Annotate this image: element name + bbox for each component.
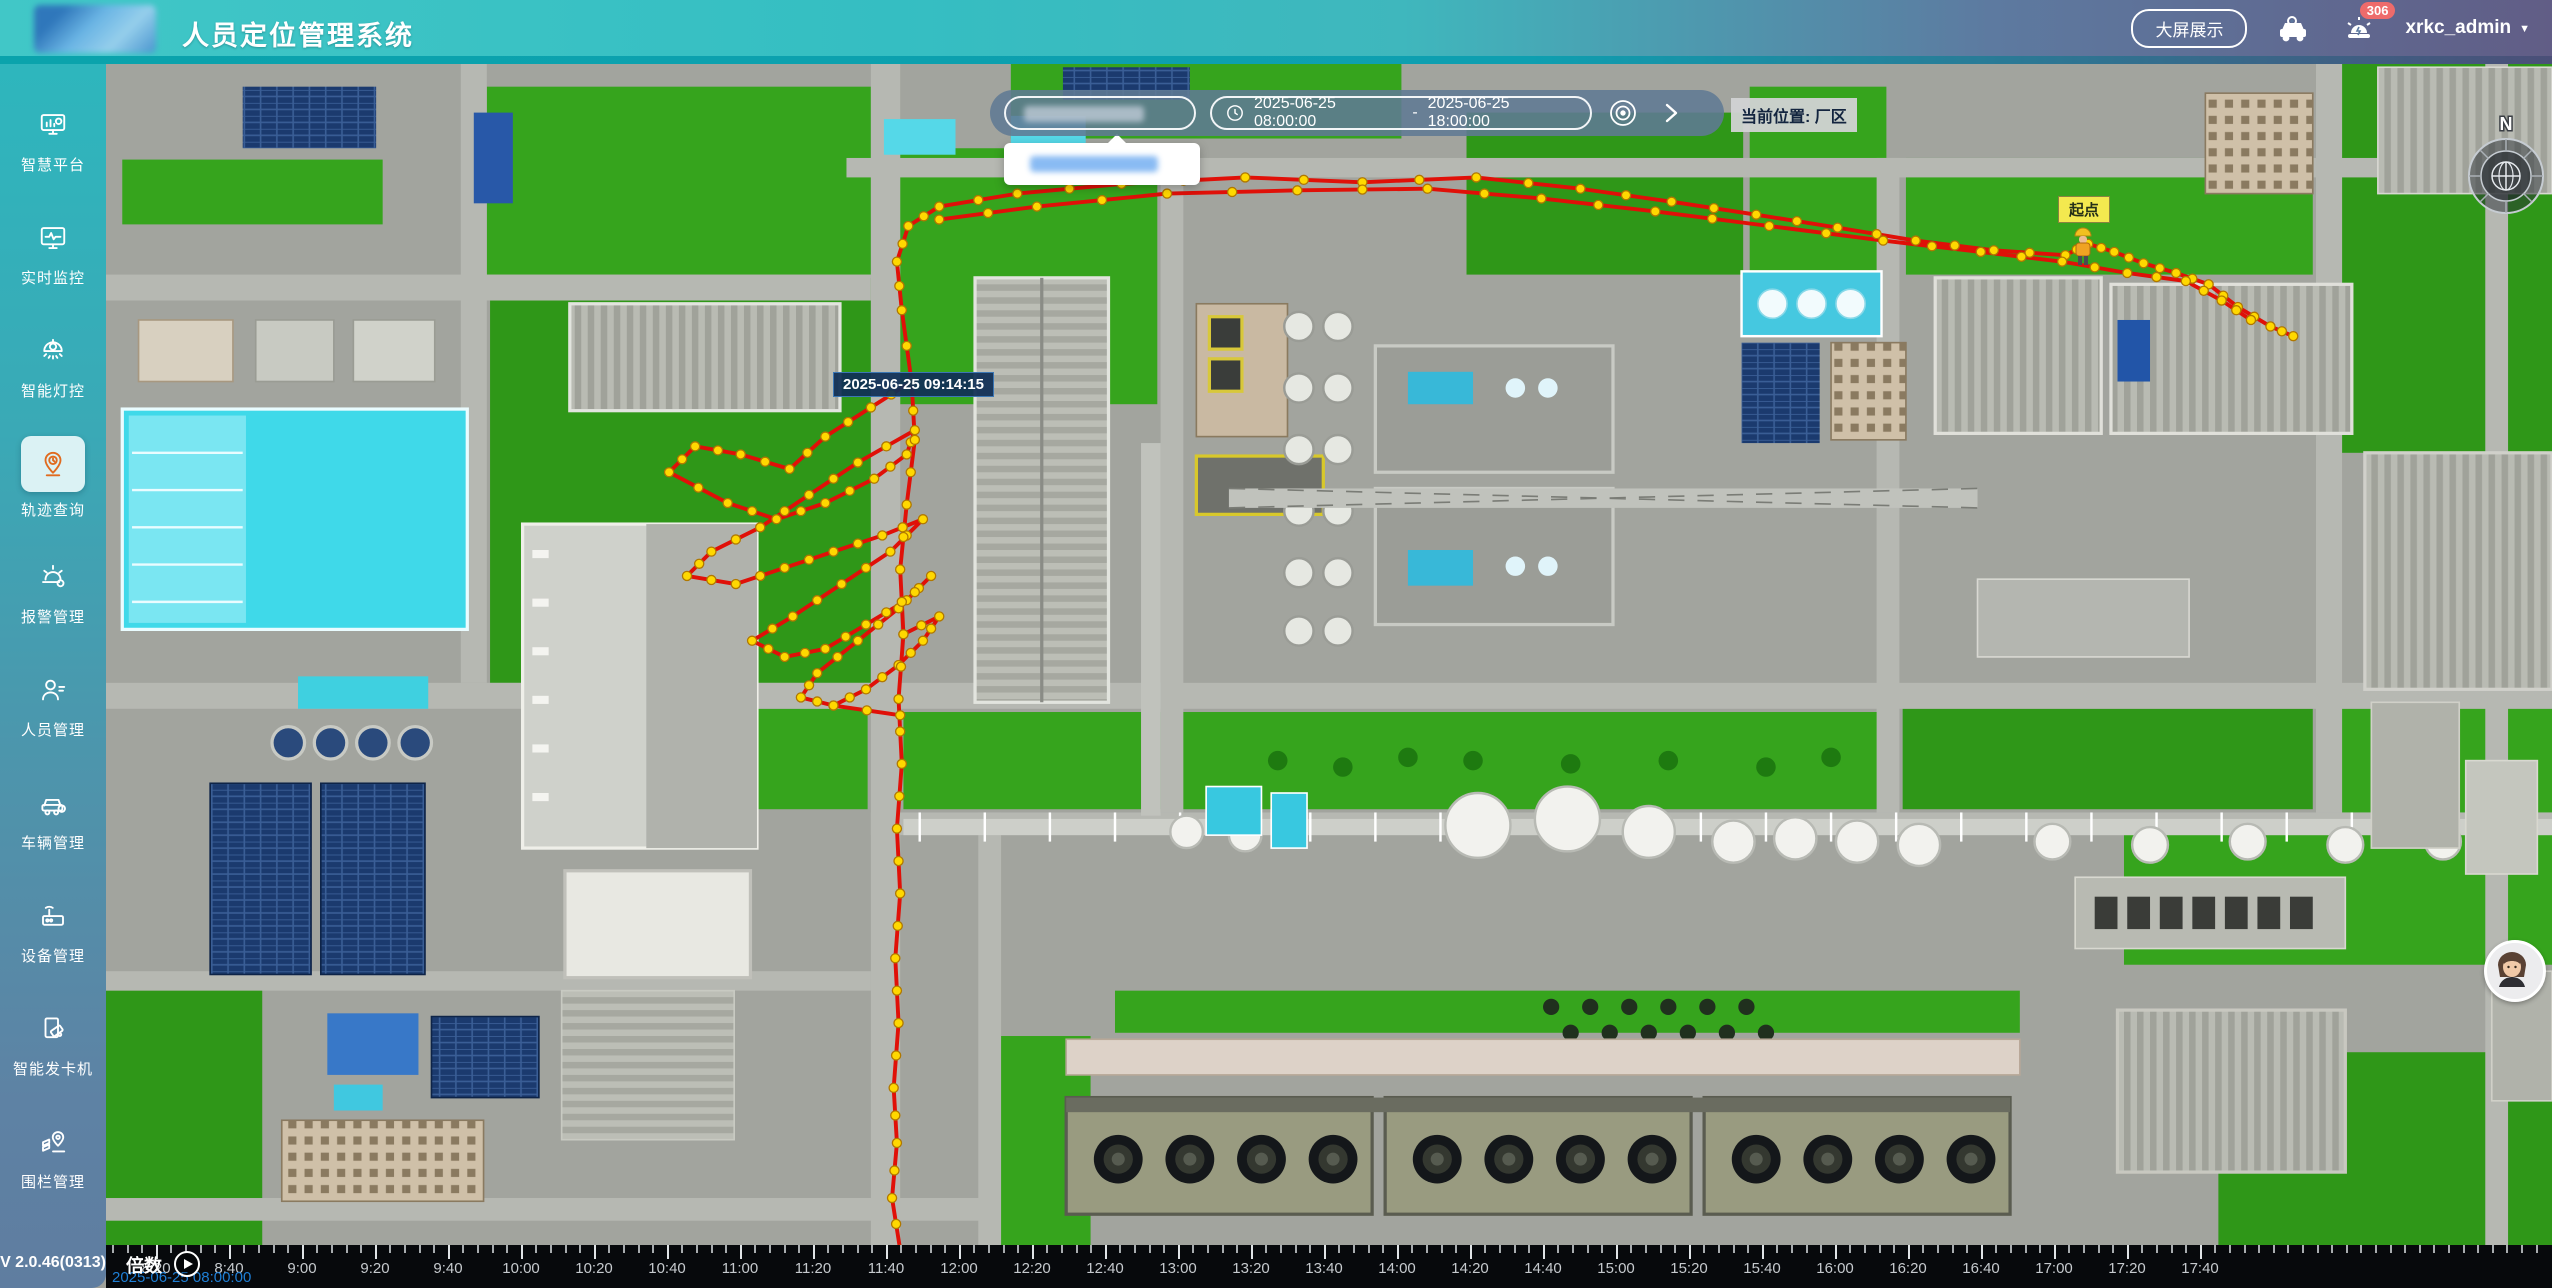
- timeline-minor-tick: [1046, 1245, 1048, 1253]
- timeline-minor-tick: [725, 1245, 727, 1253]
- timeline-minor-tick: [871, 1245, 873, 1253]
- timeline-minor-tick: [1441, 1245, 1443, 1253]
- timeline-tick-label: 12:00: [940, 1260, 978, 1277]
- timeline-minor-tick: [2185, 1245, 2187, 1253]
- sidebar-item-trajectory[interactable]: 轨迹查询: [0, 421, 106, 534]
- timeline-minor-tick: [1645, 1245, 1647, 1253]
- sidebar-item-lamp[interactable]: 智能灯控: [0, 308, 106, 421]
- timeline-minor-tick: [1265, 1245, 1267, 1253]
- timeline-minor-tick: [1119, 1245, 1121, 1253]
- sidebar-item-label: 围栏管理: [21, 1171, 85, 1192]
- timeline-minor-tick: [2244, 1245, 2246, 1253]
- timeline-tick-label: 15:20: [1670, 1260, 1708, 1277]
- timeline-minor-tick: [2360, 1245, 2362, 1253]
- timeline-major-tick: [2200, 1245, 2202, 1259]
- timeline-minor-tick: [2477, 1245, 2479, 1253]
- device-icon: [31, 894, 75, 938]
- timeline-minor-tick: [1061, 1245, 1063, 1253]
- worker-marker[interactable]: [2068, 224, 2098, 273]
- app-title: 人员定位管理系统: [182, 14, 414, 53]
- timeline-minor-tick: [2331, 1245, 2333, 1253]
- timeline-minor-tick: [1090, 1245, 1092, 1253]
- timeline-major-tick: [1470, 1245, 1472, 1259]
- sidebar-nav: 智慧平台实时监控智能灯控轨迹查询报警管理人员管理车辆管理设备管理智能发卡机围栏管…: [0, 64, 106, 1288]
- timeline-minor-tick: [535, 1245, 537, 1253]
- sidebar-item-card[interactable]: 智能发卡机: [0, 986, 106, 1099]
- timeline-minor-tick: [2068, 1245, 2070, 1253]
- timeline-tick-label: 10:00: [502, 1260, 540, 1277]
- timeline-minor-tick: [2463, 1245, 2465, 1253]
- timeline-minor-tick: [1017, 1245, 1019, 1253]
- timeline-minor-tick: [506, 1245, 508, 1253]
- map-viewport[interactable]: 2025-06-25 08:00:00 - 2025-06-25 18:00:0…: [106, 64, 2552, 1245]
- user-menu[interactable]: xrkc_admin ▼: [2405, 17, 2530, 39]
- track-point-tooltip: 2025-06-25 09:14:15: [833, 372, 994, 397]
- timeline-minor-tick: [1455, 1245, 1457, 1253]
- sidebar-item-label: 设备管理: [21, 945, 85, 966]
- timeline-minor-tick: [258, 1245, 260, 1253]
- sidebar-item-vehicle[interactable]: 车辆管理: [0, 760, 106, 873]
- timeline-minor-tick: [1163, 1245, 1165, 1253]
- timeline-minor-tick: [2346, 1245, 2348, 1253]
- timeline-minor-tick: [404, 1245, 406, 1253]
- trajectory-icon: [21, 436, 85, 492]
- date-end: 2025-06-25 18:00:00: [1428, 95, 1576, 131]
- clock-icon: [1226, 104, 1244, 122]
- timeline-minor-tick: [243, 1245, 245, 1253]
- timeline-minor-tick: [1820, 1245, 1822, 1253]
- timeline-minor-tick: [1309, 1245, 1311, 1253]
- timeline-tick-label: 9:00: [287, 1260, 316, 1277]
- alarm-count-badge: 306: [2360, 2, 2396, 19]
- timeline-minor-tick: [433, 1245, 435, 1253]
- timeline-minor-tick: [2390, 1245, 2392, 1253]
- timeline-major-tick: [740, 1245, 742, 1259]
- timeline-minor-tick: [1660, 1245, 1662, 1253]
- timeline-minor-tick: [1411, 1245, 1413, 1253]
- vehicle-icon: [31, 781, 75, 825]
- timeline-minor-tick: [2419, 1245, 2421, 1253]
- timeline-minor-tick: [1747, 1245, 1749, 1253]
- timeline-minor-tick: [1630, 1245, 1632, 1253]
- timeline-major-tick: [1981, 1245, 1983, 1259]
- sidebar-item-label: 轨迹查询: [21, 499, 85, 520]
- timeline-major-tick: [1105, 1245, 1107, 1259]
- timeline-minor-tick: [769, 1245, 771, 1253]
- playback-timeline[interactable]: 8:208:409:009:209:4010:0010:2010:4011:00…: [106, 1245, 2552, 1288]
- timeline-major-tick: [1908, 1245, 1910, 1259]
- timeline-major-tick: [667, 1245, 669, 1259]
- username: xrkc_admin: [2405, 17, 2511, 39]
- timeline-tick-label: 9:40: [433, 1260, 462, 1277]
- sidebar-item-label: 智能发卡机: [13, 1058, 93, 1079]
- timeline-tick-label: 14:00: [1378, 1260, 1416, 1277]
- timeline-minor-tick: [2433, 1245, 2435, 1253]
- timeline-minor-tick: [112, 1245, 114, 1253]
- timeline-major-tick: [2054, 1245, 2056, 1259]
- timeline-minor-tick: [1382, 1245, 1384, 1253]
- timeline-minor-tick: [492, 1245, 494, 1253]
- timeline-tick-label: 16:00: [1816, 1260, 1854, 1277]
- app-header: 人员定位管理系统 大屏展示 306: [0, 0, 2552, 64]
- timeline-minor-tick: [1236, 1245, 1238, 1253]
- timeline-minor-tick: [857, 1245, 859, 1253]
- timeline-minor-tick: [462, 1245, 464, 1253]
- timeline-minor-tick: [170, 1245, 172, 1253]
- timeline-minor-tick: [1149, 1245, 1151, 1253]
- redacted-search-value: [1024, 106, 1144, 122]
- timeline-minor-tick: [1952, 1245, 1954, 1253]
- timeline-minor-tick: [608, 1245, 610, 1253]
- timeline-minor-tick: [623, 1245, 625, 1253]
- timeline-minor-tick: [2141, 1245, 2143, 1253]
- sidebar-item-alarm[interactable]: 报警管理: [0, 534, 106, 647]
- timeline-minor-tick: [1338, 1245, 1340, 1253]
- timeline-minor-tick: [798, 1245, 800, 1253]
- timeline-minor-tick: [1572, 1245, 1574, 1253]
- timeline-major-tick: [448, 1245, 450, 1259]
- timeline-tick-label: 14:40: [1524, 1260, 1562, 1277]
- sidebar-item-label: 报警管理: [21, 606, 85, 627]
- timeline-minor-tick: [2098, 1245, 2100, 1253]
- personnel-location-app: 2025-06-25 08:00:00 - 2025-06-25 18:00:0…: [0, 0, 2552, 1288]
- chevron-down-icon: ▼: [2519, 23, 2530, 35]
- timeline-minor-tick: [2214, 1245, 2216, 1253]
- timeline-minor-tick: [2404, 1245, 2406, 1253]
- sidebar-item-label: 人员管理: [21, 719, 85, 740]
- date-start: 2025-06-25 08:00:00: [1254, 95, 1402, 131]
- locate-target-icon[interactable]: [1606, 96, 1640, 130]
- timeline-minor-tick: [1514, 1245, 1516, 1253]
- timeline-tick-label: 12:40: [1086, 1260, 1124, 1277]
- timeline-minor-tick: [2506, 1245, 2508, 1253]
- timeline-major-tick: [302, 1245, 304, 1259]
- timeline-minor-tick: [1353, 1245, 1355, 1253]
- timeline-minor-tick: [988, 1245, 990, 1253]
- timeline-tick-label: 14:20: [1451, 1260, 1489, 1277]
- timeline-major-tick: [229, 1245, 231, 1259]
- timeline-major-tick: [1762, 1245, 1764, 1259]
- alarm-bell-icon[interactable]: 306: [2339, 8, 2379, 48]
- timeline-major-tick: [1616, 1245, 1618, 1259]
- vehicle-monitor-icon[interactable]: [2273, 8, 2313, 48]
- person-search-input[interactable]: [1004, 96, 1196, 130]
- timeline-minor-tick: [1192, 1245, 1194, 1253]
- timeline-major-tick: [1543, 1245, 1545, 1259]
- timeline-minor-tick: [2521, 1245, 2523, 1253]
- timeline-tick-label: 13:40: [1305, 1260, 1343, 1277]
- timeline-major-tick: [521, 1245, 523, 1259]
- timeline-minor-tick: [1791, 1245, 1793, 1253]
- timeline-minor-tick: [1587, 1245, 1589, 1253]
- timeline-minor-tick: [2287, 1245, 2289, 1253]
- timeline-major-tick: [1324, 1245, 1326, 1259]
- timeline-tick-label: 11:20: [795, 1260, 831, 1277]
- trajectory-toolbar: 2025-06-25 08:00:00 - 2025-06-25 18:00:0…: [990, 90, 1724, 136]
- timeline-minor-tick: [1893, 1245, 1895, 1253]
- timeline-minor-tick: [1076, 1245, 1078, 1253]
- sidebar-item-device[interactable]: 设备管理: [0, 873, 106, 986]
- compass[interactable]: N: [2466, 108, 2546, 220]
- timeline-minor-tick: [1674, 1245, 1676, 1253]
- timeline-minor-tick: [2156, 1245, 2158, 1253]
- timeline-minor-tick: [1733, 1245, 1735, 1253]
- timeline-minor-tick: [1718, 1245, 1720, 1253]
- timeline-minor-tick: [273, 1245, 275, 1253]
- timeline-major-tick: [1178, 1245, 1180, 1259]
- timeline-minor-tick: [827, 1245, 829, 1253]
- timeline-minor-tick: [1222, 1245, 1224, 1253]
- timeline-tick-label: 10:40: [648, 1260, 686, 1277]
- timeline-tick-label: 17:40: [2181, 1260, 2219, 1277]
- timeline-minor-tick: [900, 1245, 902, 1253]
- play-track-arrow-icon[interactable]: [1654, 96, 1688, 130]
- person-avatar-marker[interactable]: [2484, 940, 2546, 1002]
- timeline-minor-tick: [2302, 1245, 2304, 1253]
- sidebar-item-monitor[interactable]: 实时监控: [0, 195, 106, 308]
- timeline-minor-tick: [652, 1245, 654, 1253]
- timeline-minor-tick: [2317, 1245, 2319, 1253]
- timeline-minor-tick: [2083, 1245, 2085, 1253]
- timeline-major-tick: [1397, 1245, 1399, 1259]
- timeline-minor-tick: [2112, 1245, 2114, 1253]
- timeline-minor-tick: [287, 1245, 289, 1253]
- timeline-major-tick: [886, 1245, 888, 1259]
- speed-multiplier-label: 倍数: [126, 1252, 162, 1278]
- timeline-minor-tick: [711, 1245, 713, 1253]
- timeline-major-tick: [1835, 1245, 1837, 1259]
- timeline-minor-tick: [389, 1245, 391, 1253]
- timeline-minor-tick: [2258, 1245, 2260, 1253]
- timeline-minor-tick: [696, 1245, 698, 1253]
- timeline-major-tick: [1251, 1245, 1253, 1259]
- timeline-minor-tick: [1134, 1245, 1136, 1253]
- sidebar-item-label: 智慧平台: [21, 154, 85, 175]
- timeline-minor-tick: [419, 1245, 421, 1253]
- timeline-minor-tick: [565, 1245, 567, 1253]
- date-separator: -: [1412, 104, 1417, 122]
- timeline-tick-label: 12:20: [1013, 1260, 1051, 1277]
- timeline-major-tick: [813, 1245, 815, 1259]
- timeline-minor-tick: [2025, 1245, 2027, 1253]
- sidebar-item-label: 实时监控: [21, 267, 85, 288]
- timeline-major-tick: [375, 1245, 377, 1259]
- timeline-major-tick: [959, 1245, 961, 1259]
- timeline-minor-tick: [638, 1245, 640, 1253]
- timeline-minor-tick: [1937, 1245, 1939, 1253]
- timeline-tick-label: 13:00: [1159, 1260, 1197, 1277]
- sidebar-item-person[interactable]: 人员管理: [0, 647, 106, 760]
- timeline-minor-tick: [1295, 1245, 1297, 1253]
- big-screen-button[interactable]: 大屏展示: [2131, 9, 2247, 48]
- timeline-minor-tick: [579, 1245, 581, 1253]
- timeline-minor-tick: [360, 1245, 362, 1253]
- timeline-minor-tick: [944, 1245, 946, 1253]
- timeline-major-tick: [2127, 1245, 2129, 1259]
- timeline-play-button[interactable]: [174, 1251, 200, 1277]
- current-location-label: 当前位置: 厂区: [1731, 98, 1857, 132]
- timeline-tick-label: 9:20: [360, 1260, 389, 1277]
- timeline-tick-label: 16:40: [1962, 1260, 2000, 1277]
- timeline-minor-tick: [1368, 1245, 1370, 1253]
- timeline-minor-tick: [2010, 1245, 2012, 1253]
- timeline-tick-label: 13:20: [1232, 1260, 1270, 1277]
- compass-north-letter: N: [2500, 114, 2513, 134]
- timeline-major-tick: [1689, 1245, 1691, 1259]
- fence-icon: [31, 1120, 75, 1164]
- timeline-minor-tick: [214, 1245, 216, 1253]
- timeline-major-tick: [1032, 1245, 1034, 1259]
- facility-map-art: [106, 64, 2552, 1245]
- timeline-minor-tick: [842, 1245, 844, 1253]
- timeline-minor-tick: [1966, 1245, 1968, 1253]
- track-start-flag: 起点: [2058, 196, 2110, 223]
- monitor-icon: [31, 216, 75, 260]
- timeline-minor-tick: [930, 1245, 932, 1253]
- timeline-minor-tick: [1806, 1245, 1808, 1253]
- timeline-minor-tick: [200, 1245, 202, 1253]
- card-icon: [31, 1007, 75, 1051]
- redacted-suggestion-item: [1030, 156, 1158, 172]
- timeline-tick-label: 15:40: [1743, 1260, 1781, 1277]
- timeline-minor-tick: [2229, 1245, 2231, 1253]
- timeline-minor-tick: [1280, 1245, 1282, 1253]
- timeline-minor-tick: [550, 1245, 552, 1253]
- timeline-minor-tick: [1557, 1245, 1559, 1253]
- timeline-minor-tick: [1601, 1245, 1603, 1253]
- alarm-icon: [31, 555, 75, 599]
- timeline-minor-tick: [1207, 1245, 1209, 1253]
- timeline-minor-tick: [477, 1245, 479, 1253]
- timeline-minor-tick: [1776, 1245, 1778, 1253]
- timeline-major-tick: [594, 1245, 596, 1259]
- person-icon: [31, 668, 75, 712]
- timeline-minor-tick: [1995, 1245, 1997, 1253]
- search-suggestion-dropdown[interactable]: [1004, 143, 1200, 185]
- timeline-tick-label: 17:00: [2035, 1260, 2073, 1277]
- timeline-tick-label: 15:00: [1597, 1260, 1635, 1277]
- timeline-minor-tick: [784, 1245, 786, 1253]
- timeline-tick-label: 11:40: [868, 1260, 904, 1277]
- timeline-minor-tick: [1849, 1245, 1851, 1253]
- timeline-minor-tick: [2171, 1245, 2173, 1253]
- timeline-tick-label: 11:00: [722, 1260, 758, 1277]
- timeline-tick-label: 16:20: [1889, 1260, 1927, 1277]
- version-label: V 2.0.46(0313): [0, 1254, 106, 1272]
- sidebar-item-label: 车辆管理: [21, 832, 85, 853]
- timeline-minor-tick: [1484, 1245, 1486, 1253]
- timeline-tick-label: 10:20: [575, 1260, 613, 1277]
- sidebar-item-platform[interactable]: 智慧平台: [0, 82, 106, 195]
- timeline-minor-tick: [754, 1245, 756, 1253]
- sidebar-item-fence[interactable]: 围栏管理: [0, 1099, 106, 1212]
- date-range-picker[interactable]: 2025-06-25 08:00:00 - 2025-06-25 18:00:0…: [1210, 96, 1592, 130]
- timeline-minor-tick: [1003, 1245, 1005, 1253]
- timeline-minor-tick: [973, 1245, 975, 1253]
- timeline-minor-tick: [1703, 1245, 1705, 1253]
- timeline-minor-tick: [331, 1245, 333, 1253]
- timeline-minor-tick: [2536, 1245, 2538, 1253]
- platform-icon: [31, 103, 75, 147]
- lamp-icon: [31, 329, 75, 373]
- timeline-minor-tick: [1922, 1245, 1924, 1253]
- timeline-minor-tick: [2375, 1245, 2377, 1253]
- timeline-minor-tick: [1879, 1245, 1881, 1253]
- timeline-minor-tick: [2039, 1245, 2041, 1253]
- company-logo: [34, 5, 156, 53]
- timeline-minor-tick: [2448, 1245, 2450, 1253]
- timeline-minor-tick: [681, 1245, 683, 1253]
- timeline-minor-tick: [2273, 1245, 2275, 1253]
- timeline-minor-tick: [316, 1245, 318, 1253]
- timeline-tick-label: 17:20: [2108, 1260, 2146, 1277]
- timeline-minor-tick: [915, 1245, 917, 1253]
- timeline-minor-tick: [1426, 1245, 1428, 1253]
- timeline-minor-tick: [1528, 1245, 1530, 1253]
- timeline-minor-tick: [1499, 1245, 1501, 1253]
- timeline-minor-tick: [1864, 1245, 1866, 1253]
- timeline-minor-tick: [2492, 1245, 2494, 1253]
- sidebar-item-label: 智能灯控: [21, 380, 85, 401]
- timeline-minor-tick: [346, 1245, 348, 1253]
